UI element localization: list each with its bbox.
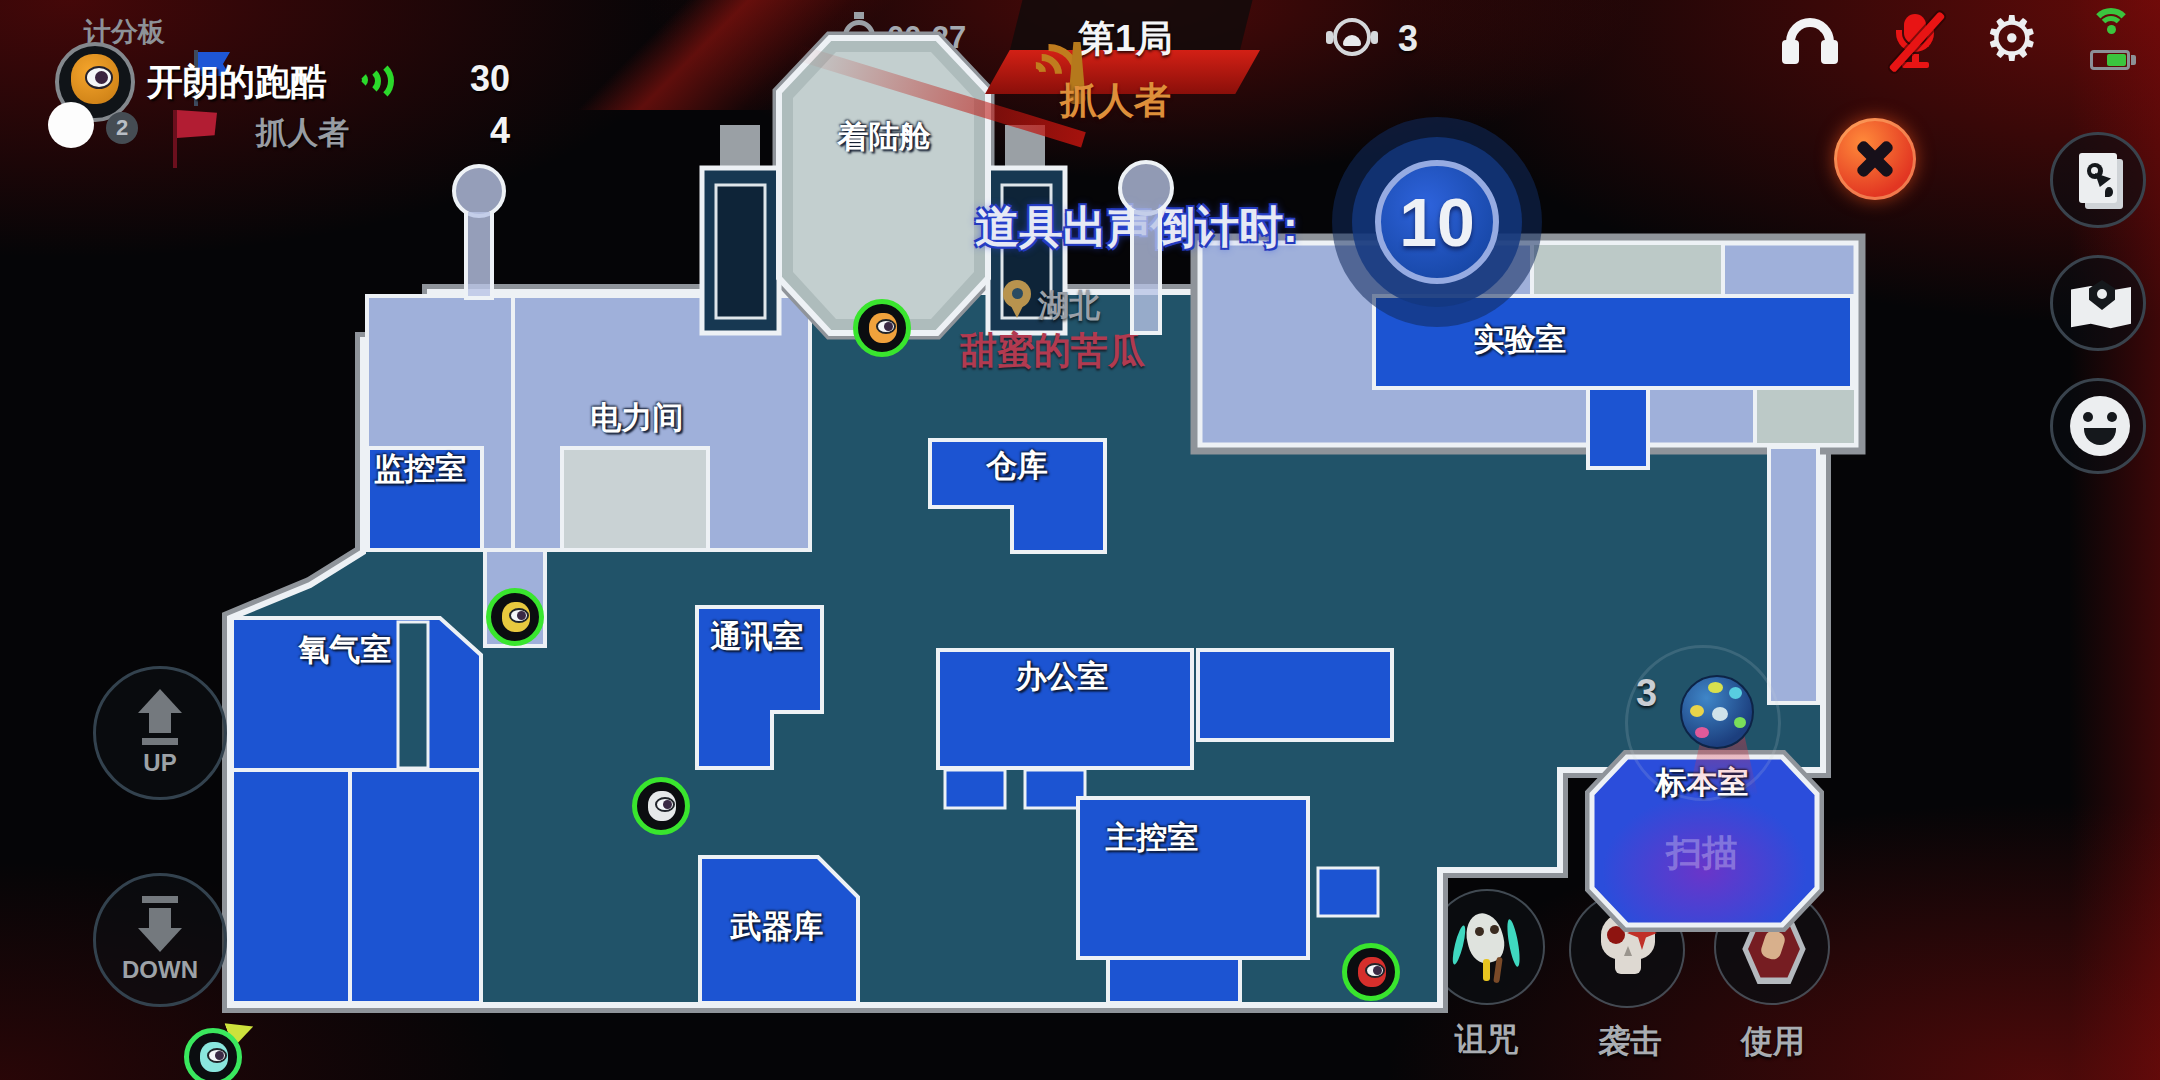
room-label-electrical: 电力间 (591, 397, 684, 439)
player-marker-yellow (486, 588, 544, 646)
room-label-control: 主控室 (1106, 817, 1199, 859)
astronaut-head-icon (1330, 18, 1374, 60)
battery-nub (2131, 55, 2136, 65)
player-marker-white (632, 777, 690, 835)
microphone-muted-icon (1884, 12, 1950, 76)
prop-countdown-circle: 10 (1375, 160, 1499, 284)
game-screen: 00:27 诅咒 袭击 使用 (0, 0, 2160, 1080)
room-label-landing-pod: 着陆舱 (838, 116, 931, 158)
room-label-monitoring: 监控室 (374, 448, 467, 490)
self-indicator-dot (48, 102, 94, 148)
headphones-button[interactable] (1782, 16, 1842, 74)
location-pin-label: 湖北 (1038, 285, 1100, 327)
down-label: DOWN (122, 956, 198, 984)
red-flag-icon (170, 106, 220, 170)
down-arrow-icon (138, 928, 182, 952)
down-button[interactable]: DOWN (93, 873, 227, 1007)
player-marker-self-cyan (184, 1028, 242, 1080)
scoreboard-title: 计分板 (84, 14, 284, 50)
location-cards-button[interactable] (2050, 132, 2146, 228)
close-button[interactable] (1834, 118, 1916, 200)
network-status (2086, 8, 2142, 78)
settings-button[interactable]: ⚙ (1984, 4, 2054, 74)
room-label-comms: 通讯室 (711, 616, 804, 658)
voice-waves-icon (352, 58, 398, 104)
nearby-player-name: 甜蜜的苦瓜 (960, 326, 1145, 376)
location-cards-icon (2079, 153, 2123, 209)
wifi-icon (2086, 8, 2138, 42)
up-label: UP (143, 749, 176, 777)
map-button[interactable] (2050, 255, 2146, 351)
role-banner-label: 抓人者 (1060, 76, 1171, 126)
room-label-warehouse: 仓库 (986, 445, 1048, 487)
specimen-scan-button[interactable]: 扫描 (1666, 829, 1738, 878)
specimen-item-count: 3 (1636, 672, 1657, 715)
room-label-office: 办公室 (1016, 656, 1109, 698)
room-label-laboratory: 实验室 (1474, 319, 1567, 361)
up-arrow-icon (138, 689, 182, 713)
player-score: 30 (440, 58, 510, 100)
player-marker-orange (853, 299, 911, 357)
smiley-icon (2070, 396, 2130, 456)
microphone-muted-button[interactable] (1884, 12, 1950, 76)
catcher-row-label: 抓人者 (256, 112, 349, 154)
catcher-score: 4 (440, 110, 510, 152)
room-label-oxygen: 氧气室 (299, 629, 392, 671)
disco-ball-icon (1680, 675, 1754, 749)
player-count-value: 3 (1398, 18, 1418, 60)
gear-icon: ⚙ (1984, 4, 2040, 73)
map-icon (2071, 280, 2131, 332)
prop-countdown-value: 10 (1399, 183, 1475, 261)
player-name: 开朗的跑酷 (147, 58, 327, 107)
emote-button[interactable] (2050, 378, 2146, 474)
player-marker-red (1342, 943, 1400, 1001)
battery-icon (2090, 50, 2130, 70)
room-label-armory: 武器库 (731, 906, 824, 948)
up-button[interactable]: UP (93, 666, 227, 800)
location-pin-icon (1003, 280, 1031, 320)
avatar-level-badge: 2 (106, 112, 138, 144)
